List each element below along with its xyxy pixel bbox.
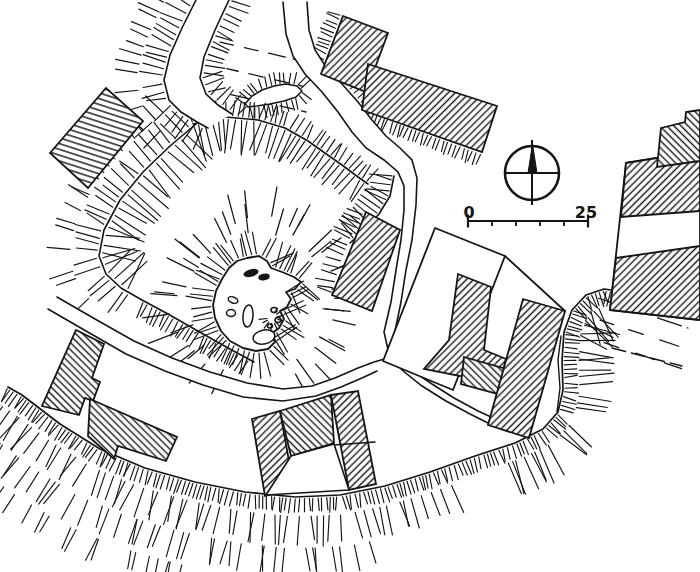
scale-end-label: 25 xyxy=(575,203,597,222)
east-farm-south-wing xyxy=(610,246,700,320)
valley-scarp-hachure-row2 xyxy=(0,405,464,546)
road-northwest-hollow xyxy=(164,0,232,128)
north-needle xyxy=(528,144,537,173)
east-farm-small-building xyxy=(657,110,700,167)
scale-bar: 0 25 xyxy=(463,203,597,228)
compass-rose xyxy=(504,140,560,205)
valley-scarp-hachure-row4 xyxy=(0,470,182,572)
bailey-north-bank-south-hachure xyxy=(194,119,364,201)
scale-bar-marks xyxy=(468,215,588,228)
site-plan: 0 25 xyxy=(0,0,700,572)
site-plan-map: 0 25 xyxy=(0,0,700,572)
building-bailey-east xyxy=(332,212,400,311)
scale-start-label: 0 xyxy=(463,203,474,222)
map-features xyxy=(0,0,700,572)
motte-stone xyxy=(227,310,236,317)
